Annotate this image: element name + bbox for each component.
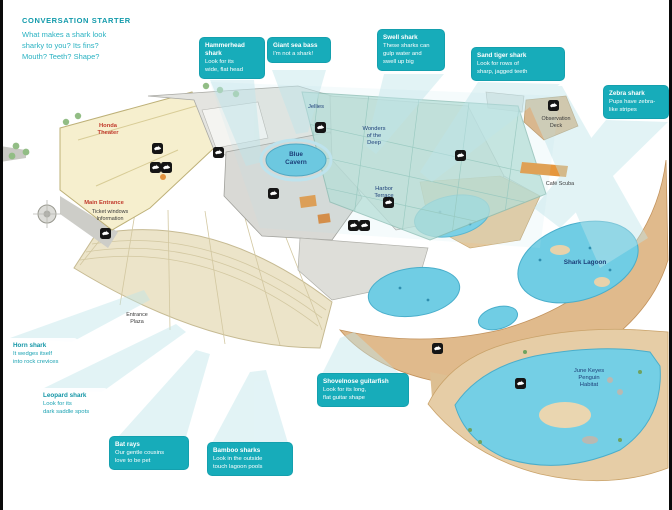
- shark-marker-icon: [268, 188, 279, 199]
- callout-leopard-shark: Leopard shark Look for its dark saddle s…: [38, 388, 108, 420]
- label-wonders-deep: Wonders of the Deep: [362, 126, 385, 147]
- callout-title: Bat rays: [115, 441, 183, 449]
- callout-horn-shark: Horn shark It wedges itself into rock cr…: [8, 338, 78, 370]
- callout-line: touch lagoon pools: [213, 463, 287, 471]
- aquarium-map-art: [0, 0, 672, 510]
- callout-giant-sea-bass: Giant sea bass I'm not a shark!: [268, 38, 330, 62]
- callout-line: sharp, jagged teeth: [477, 68, 559, 76]
- callout-title: Leopard shark: [43, 392, 103, 400]
- conversation-starter-line: What makes a shark look: [22, 29, 152, 40]
- callout-title: Giant sea bass: [273, 42, 325, 50]
- shark-marker-icon: [455, 150, 466, 161]
- label-cafe-scuba: Café Scuba: [546, 181, 574, 188]
- callout-title: Shovelnose guitarfish: [323, 378, 403, 386]
- label-penguin-habitat: June Keyes Penguin Habitat: [574, 368, 604, 389]
- callout-line: I'm not a shark!: [273, 50, 325, 58]
- conversation-starter: CONVERSATION STARTER What makes a shark …: [22, 16, 152, 62]
- callout-line: Look for its long,: [323, 386, 403, 394]
- conversation-starter-line: Mouth? Teeth? Shape?: [22, 51, 152, 62]
- label-ticket-windows: Ticket windows Information: [92, 209, 128, 222]
- conversation-starter-line: sharky to you? Its fins?: [22, 40, 152, 51]
- shark-marker-icon: [359, 220, 370, 231]
- callout-bat-rays: Bat rays Our gentle cousins love to be p…: [110, 437, 188, 469]
- callout-title: Sand tiger shark: [477, 52, 559, 60]
- shark-marker-icon: [100, 228, 111, 239]
- callout-line: Look for its: [205, 58, 259, 66]
- shark-marker-icon: [315, 122, 326, 133]
- callout-title: Swell shark: [383, 34, 439, 42]
- callout-line: Pups have zebra-: [609, 98, 663, 106]
- label-observation-deck: Observation Deck: [541, 116, 570, 129]
- shark-marker-icon: [432, 343, 443, 354]
- callout-sand-tiger-shark: Sand tiger shark Look for rows of sharp,…: [472, 48, 564, 80]
- callout-line: flat guitar shape: [323, 394, 403, 402]
- callout-line: into rock crevices: [13, 358, 73, 366]
- callout-zebra-shark: Zebra shark Pups have zebra- like stripe…: [604, 86, 668, 118]
- callout-title: Bamboo sharks: [213, 447, 287, 455]
- callout-title: Hammerhead shark: [205, 42, 259, 58]
- callout-hammerhead-shark: Hammerhead shark Look for its wide, flat…: [200, 38, 264, 78]
- callout-line: dark saddle spots: [43, 408, 103, 416]
- shark-marker-icon: [152, 143, 163, 154]
- callout-line: These sharks can: [383, 42, 439, 50]
- callout-line: gulp water and: [383, 50, 439, 58]
- label-jellies: Jellies: [308, 104, 324, 111]
- label-honda-theater: Honda Theater: [98, 123, 119, 137]
- aquarium-shark-map: Honda Theater Main Entrance Ticket windo…: [0, 0, 672, 510]
- label-blue-cavern: Blue Cavern: [285, 151, 307, 167]
- callout-line: swell up big: [383, 58, 439, 66]
- callout-line: Look for its: [43, 400, 103, 408]
- callout-bamboo-sharks: Bamboo sharks Look in the outside touch …: [208, 443, 292, 475]
- shark-marker-icon: [150, 162, 161, 173]
- shark-marker-icon: [515, 378, 526, 389]
- callout-title: Horn shark: [13, 342, 73, 350]
- callout-swell-shark: Swell shark These sharks can gulp water …: [378, 30, 444, 70]
- callout-line: Look for rows of: [477, 60, 559, 68]
- label-entrance-plaza: Entrance Plaza: [126, 312, 148, 325]
- shark-marker-icon: [161, 162, 172, 173]
- callout-line: Our gentle cousins: [115, 449, 183, 457]
- callout-title: Zebra shark: [609, 90, 663, 98]
- callout-line: It wedges itself: [13, 350, 73, 358]
- conversation-starter-heading: CONVERSATION STARTER: [22, 16, 152, 25]
- shark-marker-icon: [548, 100, 559, 111]
- callout-line: Look in the outside: [213, 455, 287, 463]
- image-edge-bar: [0, 0, 3, 510]
- label-shark-lagoon: Shark Lagoon: [564, 259, 607, 267]
- callout-line: like stripes: [609, 106, 663, 114]
- shark-marker-icon: [348, 220, 359, 231]
- shark-marker-icon: [213, 147, 224, 158]
- callout-line: wide, flat head: [205, 66, 259, 74]
- callout-line: love to be pet: [115, 457, 183, 465]
- shark-marker-icon: [383, 197, 394, 208]
- label-main-entrance: Main Entrance: [84, 200, 124, 207]
- callout-shovelnose-guitarfish: Shovelnose guitarfish Look for its long,…: [318, 374, 408, 406]
